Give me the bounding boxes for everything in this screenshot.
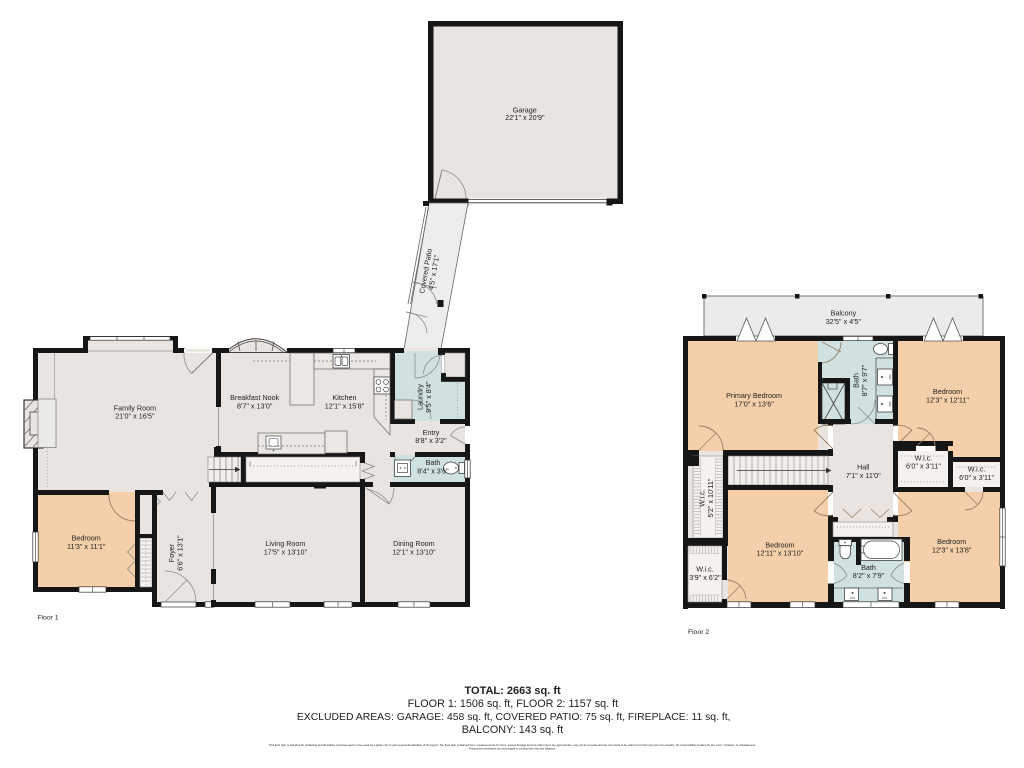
svg-text:Prospective purchasers are enc: Prospective purchasers are encouraged to… <box>469 747 556 751</box>
svg-text:21'0" x 16'5": 21'0" x 16'5" <box>115 412 155 421</box>
svg-text:6'0" x 3'11": 6'0" x 3'11" <box>959 473 994 482</box>
svg-text:Floor 1: Floor 1 <box>37 614 58 621</box>
svg-text:This floor plan is intended fo: This floor plan is intended for marketin… <box>269 743 756 747</box>
svg-text:6'0" x 3'11": 6'0" x 3'11" <box>906 462 941 471</box>
svg-text:8'7" x 13'0": 8'7" x 13'0" <box>237 401 273 410</box>
svg-text:TOTAL: 2663 sq. ft: TOTAL: 2663 sq. ft <box>465 685 562 697</box>
svg-text:22'1" x 20'9": 22'1" x 20'9" <box>505 113 545 122</box>
svg-text:Floor 2: Floor 2 <box>688 629 709 636</box>
svg-text:FLOOR 1: 1506 sq. ft, FLOOR 2:: FLOOR 1: 1506 sq. ft, FLOOR 2: 1157 sq. … <box>408 698 618 710</box>
svg-text:12'11" x 13'10": 12'11" x 13'10" <box>756 549 803 558</box>
svg-text:EXCLUDED AREAS: GARAGE: 458 sq: EXCLUDED AREAS: GARAGE: 458 sq. ft, COVE… <box>297 712 731 723</box>
svg-text:12'3" x 13'8": 12'3" x 13'8" <box>932 545 972 554</box>
svg-text:17'5" x 13'10": 17'5" x 13'10" <box>264 548 308 557</box>
svg-text:8'4" x 3'6": 8'4" x 3'6" <box>417 466 449 475</box>
svg-text:8'2" x 7'9": 8'2" x 7'9" <box>853 571 885 580</box>
svg-text:32'5" x 4'5": 32'5" x 4'5" <box>826 317 862 326</box>
svg-text:12'1" x 15'8": 12'1" x 15'8" <box>325 401 365 410</box>
svg-text:3'9" x 6'2": 3'9" x 6'2" <box>689 573 721 582</box>
svg-text:BALCONY: 143 sq. ft: BALCONY: 143 sq. ft <box>462 724 563 736</box>
svg-text:12'1" x 13'10": 12'1" x 13'10" <box>392 548 436 557</box>
svg-text:11'3" x 11'1": 11'3" x 11'1" <box>67 542 106 551</box>
svg-text:7'1" x 11'0": 7'1" x 11'0" <box>846 471 881 480</box>
svg-text:8'8" x 3'2": 8'8" x 3'2" <box>415 436 447 445</box>
svg-text:Laundry9'5" x 8'4": Laundry9'5" x 8'4" <box>416 381 433 413</box>
svg-text:12'3" x 12'11": 12'3" x 12'11" <box>926 396 969 405</box>
svg-text:17'0" x 13'6": 17'0" x 13'6" <box>734 400 774 409</box>
